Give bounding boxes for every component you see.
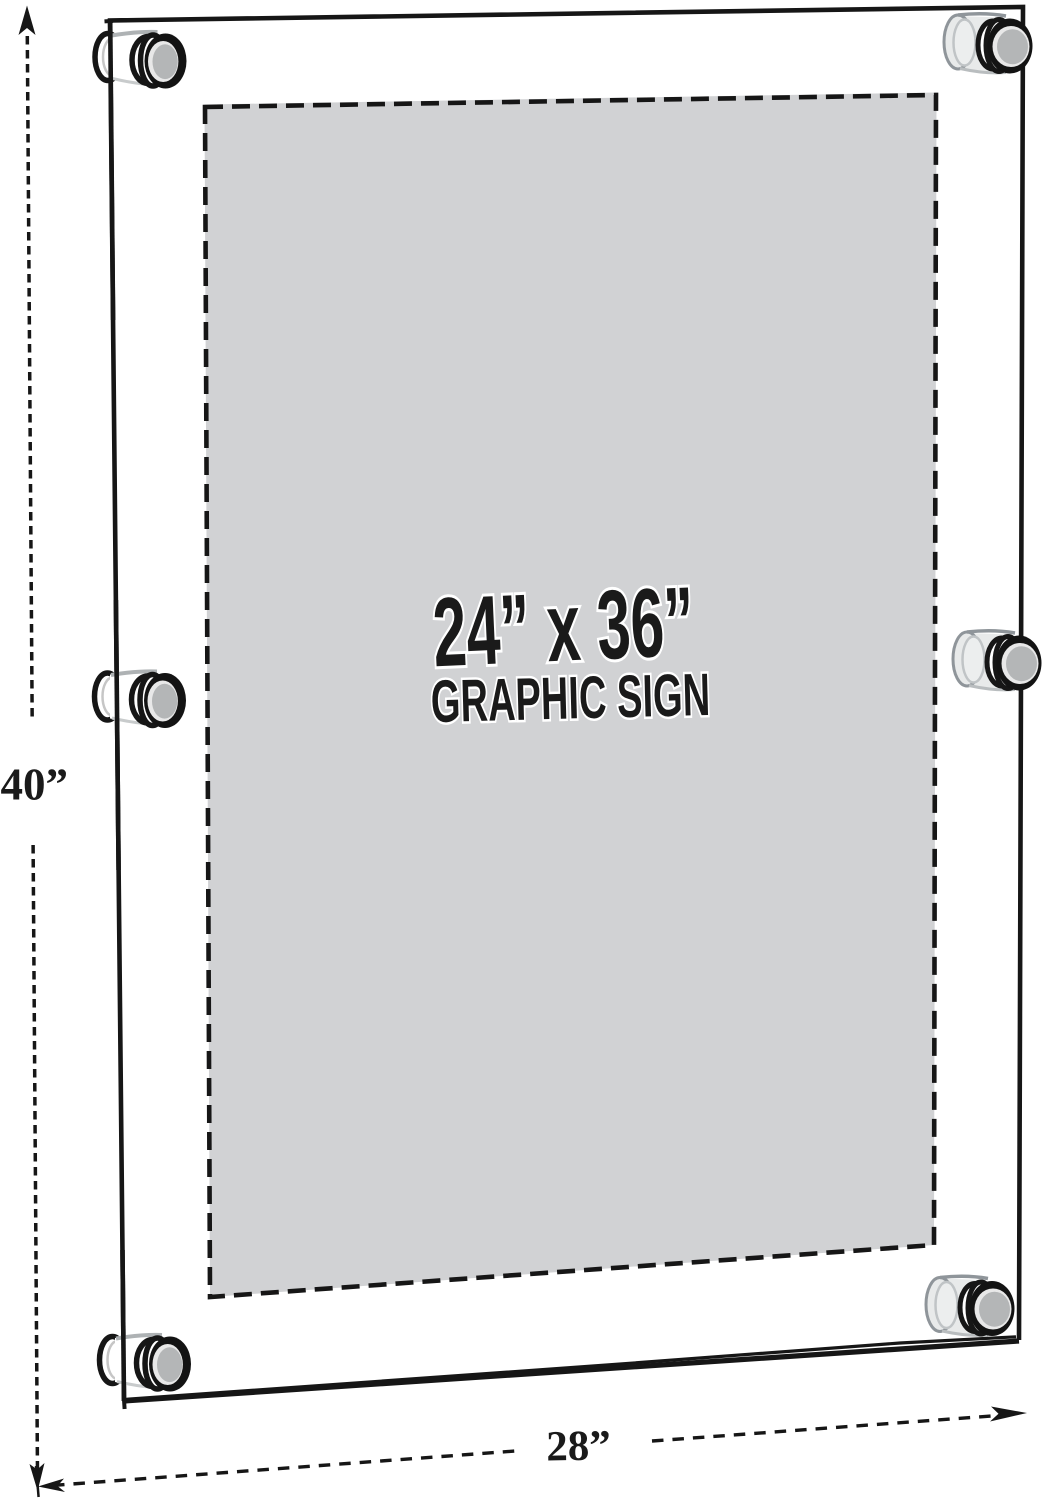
svg-text:40”: 40” [1, 760, 69, 810]
svg-text:GRAPHIC SIGN: GRAPHIC SIGN [430, 661, 711, 735]
svg-text:28”: 28” [546, 1422, 611, 1470]
